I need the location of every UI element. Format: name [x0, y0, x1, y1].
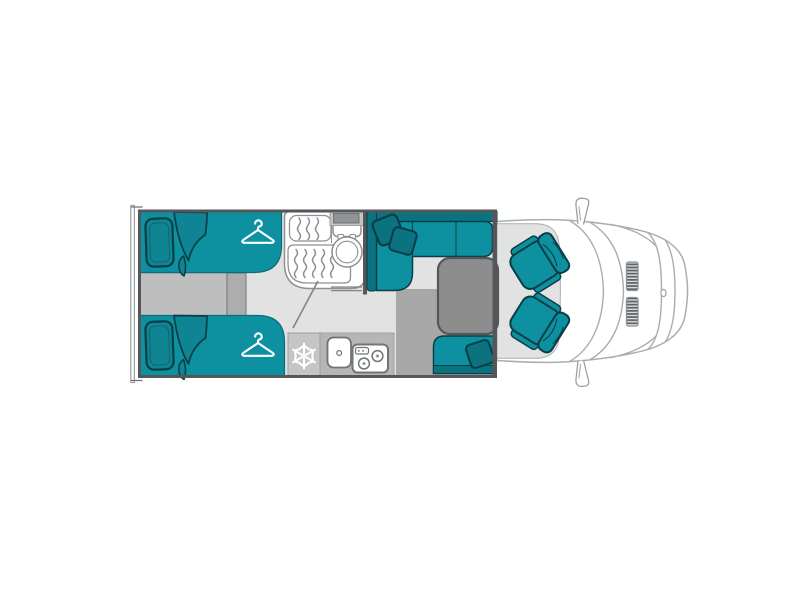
side-mirror-bottom [576, 361, 589, 387]
bed-bottom [139, 316, 285, 380]
vehicle-front [497, 198, 688, 386]
bathroom-wall [363, 212, 367, 295]
hob [353, 345, 389, 373]
living-area [131, 206, 498, 383]
bedroom-step-riser [227, 273, 246, 316]
side-mirror-top [576, 198, 589, 224]
floorplan-image [0, 0, 800, 600]
front-badge [661, 289, 666, 296]
grille-vent-bottom [627, 298, 639, 327]
burner-center [376, 355, 379, 358]
hob-knob [362, 350, 364, 352]
bed-top [139, 212, 282, 277]
bench-backrest [434, 366, 496, 374]
floorplan-svg [0, 0, 800, 600]
kitchen [288, 333, 394, 377]
side-bench [434, 336, 496, 374]
overhead-locker-door [334, 214, 360, 224]
shower-tray-small [290, 216, 332, 242]
dinette-table [438, 258, 498, 334]
pillow-bottom [145, 321, 174, 370]
sofa-pillow [388, 226, 418, 256]
grille-vent-top [627, 262, 639, 291]
bedroom-step [139, 273, 227, 316]
hob-knob [358, 350, 360, 352]
burner-center [363, 362, 366, 365]
sink [328, 338, 352, 368]
pillow-top [145, 218, 174, 267]
toilet [332, 220, 362, 268]
